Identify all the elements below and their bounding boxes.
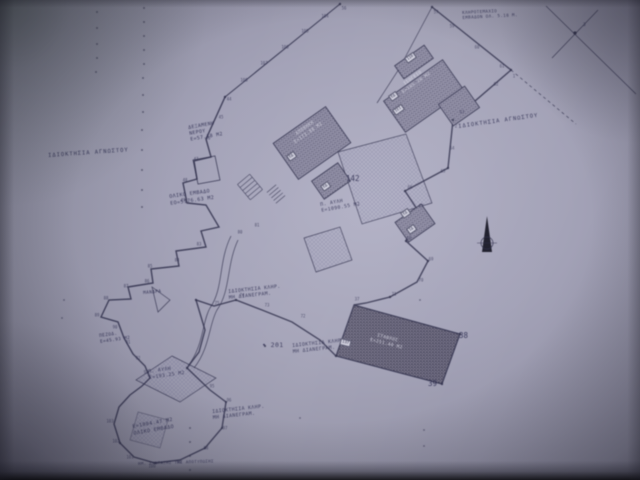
point-201: 201 bbox=[271, 341, 284, 349]
survey-point-number: 57 bbox=[434, 10, 439, 15]
survey-point-number: 71 bbox=[392, 292, 397, 297]
stable-text: ΣΤΑΒΛΟΣ Ε=251.40 Μ2 bbox=[369, 332, 404, 351]
survey-point-number: 66 bbox=[408, 185, 413, 190]
survey-point-number: 75 bbox=[215, 301, 220, 306]
survey-point-number: 68 bbox=[407, 236, 412, 241]
survey-point-number: 91 bbox=[126, 340, 131, 345]
building-tag-110: 110 bbox=[404, 52, 417, 64]
survey-point-number: 95 bbox=[210, 384, 215, 389]
plan-labels: ΚΛΗΡΟΤΕΜΑΧΙΟ ΕΜΒΑΔΟΝ ΟΛ. 5.18 Μ. 3 ΙΔΙΟΚ… bbox=[0, 0, 640, 480]
survey-point-number: 62 bbox=[494, 82, 499, 87]
survey-point-number: 47 bbox=[194, 157, 199, 162]
owner-label-right: ΙΔΙΟΚΤΗΣΙΑ ΑΓΝΩΣΤΟΥ bbox=[458, 113, 539, 131]
survey-point-number: 86 bbox=[145, 279, 150, 284]
survey-point-number: 102 bbox=[112, 439, 119, 444]
survey-point-number: 37 bbox=[355, 297, 360, 302]
survey-point-number: 103 bbox=[106, 419, 113, 424]
survey-point-number: 56 bbox=[342, 6, 347, 11]
survey-point-number: 105 bbox=[301, 29, 308, 34]
area-number-142: 142 bbox=[346, 174, 360, 184]
survey-point-number: 99 bbox=[177, 460, 182, 465]
survey-point-number: 69 bbox=[429, 257, 434, 262]
storehouse-top-tag2: ΙΕΙ bbox=[392, 104, 405, 116]
survey-plan-photo: ΚΛΗΡΟΤΕΜΑΧΙΟ ΕΜΒΑΔΟΝ ΟΛ. 5.18 Μ. 3 ΙΔΙΟΚ… bbox=[0, 0, 640, 480]
survey-point-number: 84 bbox=[175, 258, 180, 263]
survey-point-number: 106 bbox=[281, 45, 288, 50]
survey-point-number: 108 bbox=[240, 78, 247, 83]
survey-point-number: 45 bbox=[219, 115, 224, 120]
storehouse-top-text: ΙΣΟΓΕΙΟ Ε=105.20 Μ2 bbox=[398, 67, 432, 96]
survey-point-number: 87 bbox=[124, 284, 129, 289]
survey-point-number: 72 bbox=[301, 314, 306, 319]
survey-point-number: 63 bbox=[460, 110, 465, 115]
storehouse-mid-text: ΑΠΟΘΗΚΗ Ε=173.80 Μ2 bbox=[290, 117, 324, 146]
top-note: ΚΛΗΡΟΤΕΜΑΧΙΟ ΕΜΒΑΔΟΝ ΟΛ. 5.18 Μ. bbox=[462, 7, 518, 21]
survey-point-number: 85 bbox=[148, 264, 153, 269]
survey-point-number: 97 bbox=[223, 426, 228, 431]
survey-point-number: 67 bbox=[419, 204, 424, 209]
point-39-label: 39 bbox=[428, 379, 437, 389]
survey-point-number: 81 bbox=[255, 223, 260, 228]
point-201-label: • 201 bbox=[262, 341, 284, 349]
claim-note-1: ΙΔΙΟΚΤΗΣΙΑ ΚΛΗΡ. ΜΗ ΔΙΑΝΕΓΡΑΜ. bbox=[228, 285, 282, 303]
yard-low-label: Π. ΑΥΛΗ Ε=193.25 Μ2 bbox=[148, 365, 186, 382]
survey-point-number: 107 bbox=[260, 61, 267, 66]
survey-point-number: 61 bbox=[500, 64, 505, 69]
small-right-tag2: ΙΔ bbox=[406, 224, 417, 234]
survey-point-number: 101 bbox=[126, 455, 133, 460]
survey-point-number: 100 bbox=[148, 464, 155, 469]
survey-point-number: 44 bbox=[227, 97, 232, 102]
boot-total-label: Ε=1004.47 Μ2 ΟΛΙΚΟ ΕΜΒΑΔΟ bbox=[132, 417, 175, 437]
water-tank-label: ΔΕΞΑΜΕΝΗ ΝΕΡΟΥ Ε=57.18 Μ2 bbox=[188, 120, 224, 144]
mandra-label: ΜΑΝΔΡΑ bbox=[143, 289, 162, 296]
survey-point-number: 98 bbox=[204, 446, 209, 451]
small-mid-tag: ΕΔ bbox=[320, 181, 331, 191]
small-right-tag: ΕΔ bbox=[400, 208, 411, 218]
survey-point-number: 1 bbox=[513, 74, 515, 79]
survey-point-number: 104 bbox=[321, 14, 328, 19]
plan-drawing: ΚΛΗΡΟΤΕΜΑΧΙΟ ΕΜΒΑΔΟΝ ΟΛ. 5.18 Μ. 3 ΙΔΙΟΚ… bbox=[0, 0, 640, 480]
survey-point-number: 64 bbox=[450, 146, 455, 151]
survey-point-number: 60 bbox=[475, 45, 480, 50]
survey-point-number: 73 bbox=[265, 303, 270, 308]
survey-point-number: 80 bbox=[238, 230, 243, 235]
survey-point-number: 65 bbox=[441, 169, 446, 174]
survey-point-number: 93 bbox=[144, 370, 149, 375]
triangulation-label: 3 bbox=[583, 23, 586, 29]
survey-point-number: 59 bbox=[450, 24, 455, 29]
survey-point-number: 46 bbox=[206, 136, 211, 141]
storehouse-top-tag: ΕΔ bbox=[388, 91, 399, 101]
survey-point-number: 48 bbox=[183, 178, 188, 183]
yard-mid-label: Π. ΑΥΛΗ Ε=1090.55 Μ2 bbox=[320, 196, 361, 215]
claim-note-2: ΙΔΙΟΚΤΗΣΙΑ ΚΛΗΡ. ΜΗ ΔΙΑΝΕΓΡΑΜ. bbox=[292, 339, 346, 357]
survey-point-number: 70 bbox=[419, 278, 424, 283]
survey-point-number: 83 bbox=[197, 242, 202, 247]
storehouse-mid-tag: ΕΔ bbox=[286, 151, 297, 161]
owner-label-left: ΙΔΙΟΚΤΗΣΙΑ ΑΓΝΩΣΤΟΥ bbox=[48, 147, 129, 160]
survey-point-number: 74 bbox=[240, 293, 245, 298]
survey-point-number: 89 bbox=[95, 313, 100, 318]
claim-note-3: ΙΔΙΟΚΤΗΣΙΑ ΚΛΗΡ. ΜΗ ΔΙΑΝΕΓΡΑΜ. bbox=[212, 405, 266, 423]
survey-point-number: 96 bbox=[227, 398, 232, 403]
point-38-label: 38 bbox=[459, 331, 468, 341]
survey-point-number: 49 bbox=[181, 198, 186, 203]
survey-point-number: 2 bbox=[455, 124, 457, 129]
survey-point-number: 90 bbox=[113, 325, 118, 330]
total-area-label: ΟΛΙΚΟ ΕΜΒΑΔΟ ΕΟ=5176.63 Μ2 bbox=[169, 188, 215, 207]
survey-point-number: 88 bbox=[104, 296, 109, 301]
survey-point-number: 92 bbox=[136, 356, 141, 361]
